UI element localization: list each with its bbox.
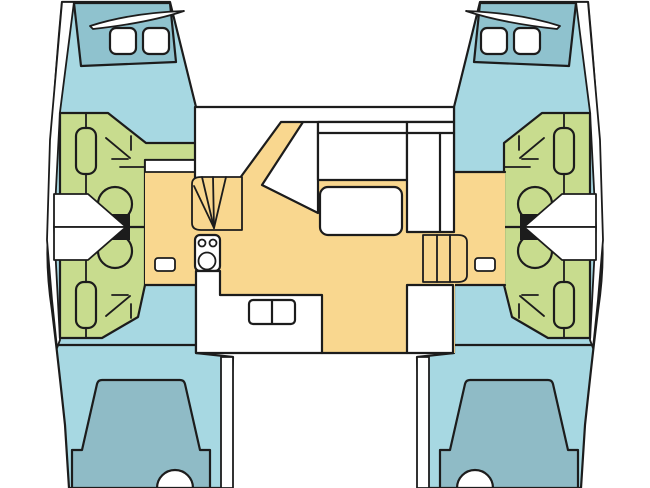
washbasin — [554, 282, 574, 328]
inner-deck-strip-port — [221, 357, 233, 488]
washbasin — [554, 128, 574, 174]
passage-step — [475, 258, 495, 271]
curved-stairs-port — [192, 177, 242, 230]
washbasin — [76, 128, 96, 174]
settee-seat — [318, 122, 407, 180]
settee-corner — [407, 122, 454, 232]
landing-platform-starboard — [407, 285, 453, 353]
floor-plan — [0, 0, 650, 488]
foredeck-hatch — [481, 28, 507, 54]
foredeck-hatch — [110, 28, 136, 54]
stairs-starboard — [423, 235, 467, 282]
inner-deck-strip-starboard — [417, 357, 429, 488]
washbasin — [76, 282, 96, 328]
floor-plan-canvas — [0, 0, 650, 488]
companionway-threshold-port — [145, 160, 196, 172]
foredeck-hatch — [143, 28, 169, 54]
saloon-table — [320, 187, 402, 235]
passage-step — [155, 258, 175, 271]
foredeck-hatch — [514, 28, 540, 54]
